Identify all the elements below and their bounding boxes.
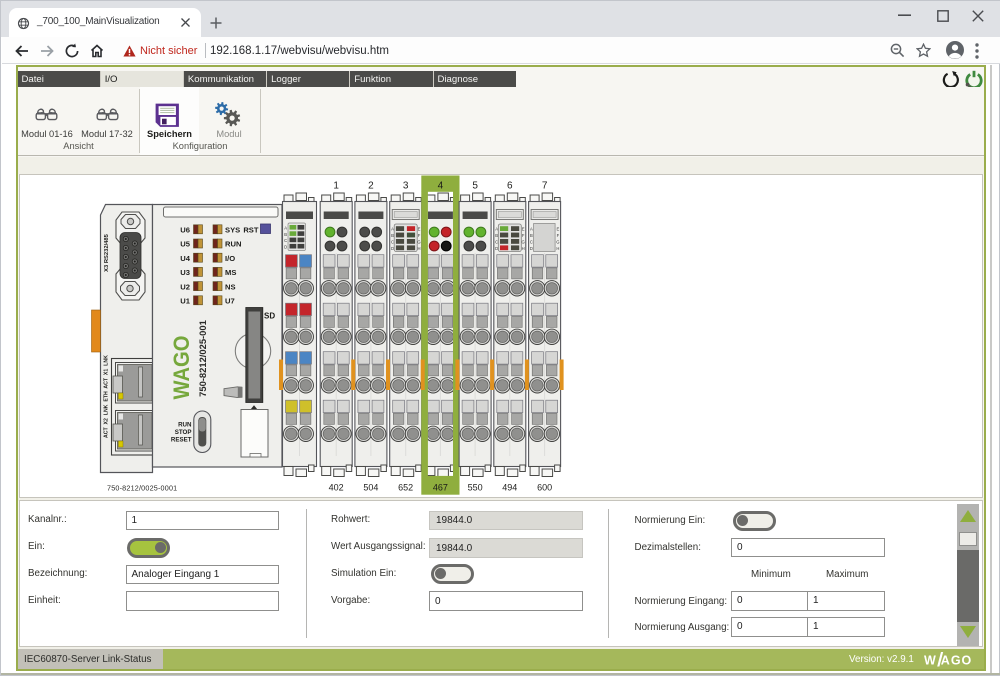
- svg-text:STOP: STOP: [175, 429, 192, 436]
- svg-text:F: F: [557, 233, 560, 238]
- svg-text:U1: U1: [180, 297, 190, 306]
- svg-text:I/O: I/O: [225, 254, 235, 263]
- svg-text:U6: U6: [180, 226, 190, 235]
- svg-text:RST: RST: [243, 225, 259, 234]
- svg-text:A: A: [391, 227, 394, 232]
- svg-text:D: D: [284, 245, 287, 250]
- svg-text:2: 2: [368, 181, 374, 192]
- svg-text:H: H: [556, 246, 559, 251]
- svg-text:SYS: SYS: [225, 226, 240, 235]
- svg-text:D: D: [495, 246, 498, 251]
- svg-text:5: 5: [472, 181, 478, 192]
- svg-text:G: G: [417, 239, 420, 244]
- svg-text:504: 504: [363, 483, 378, 493]
- svg-text:G: G: [521, 239, 524, 244]
- svg-text:A: A: [530, 227, 533, 232]
- svg-text:B: B: [284, 232, 287, 237]
- svg-text:U2: U2: [180, 282, 190, 291]
- svg-text:H: H: [522, 246, 525, 251]
- svg-text:U4: U4: [180, 254, 190, 263]
- svg-text:C: C: [391, 239, 394, 244]
- svg-text:4: 4: [438, 181, 444, 192]
- svg-text:U7: U7: [225, 297, 235, 306]
- svg-text:D: D: [391, 246, 394, 251]
- svg-text:D: D: [530, 246, 533, 251]
- svg-text:B: B: [530, 233, 533, 238]
- svg-text:X3 RS232/485: X3 RS232/485: [104, 233, 110, 271]
- svg-text:ACT X2 LNK ETH ACT X1 LN: ACT X2 LNK ETH ACT X1 LNK: [104, 355, 110, 438]
- svg-text:550: 550: [468, 483, 483, 493]
- svg-text:G: G: [556, 239, 559, 244]
- svg-text:A: A: [495, 227, 498, 232]
- svg-text:750-8212/0025-0001: 750-8212/0025-0001: [107, 484, 177, 493]
- svg-text:C: C: [530, 239, 533, 244]
- svg-text:SD: SD: [264, 312, 275, 321]
- svg-text:B: B: [391, 233, 394, 238]
- svg-text:RUN: RUN: [178, 422, 192, 429]
- svg-text:494: 494: [502, 483, 517, 493]
- svg-text:750-8212/025-001: 750-8212/025-001: [197, 320, 208, 397]
- svg-text:RESET: RESET: [171, 437, 192, 444]
- svg-text:W: W: [924, 654, 936, 668]
- svg-text:F: F: [418, 233, 421, 238]
- svg-text:467: 467: [433, 483, 448, 493]
- svg-text:F: F: [522, 233, 525, 238]
- svg-text:E: E: [557, 227, 560, 232]
- svg-text:RUN: RUN: [225, 240, 241, 249]
- svg-text:6: 6: [507, 181, 513, 192]
- svg-text:H: H: [417, 246, 420, 251]
- svg-text:U5: U5: [180, 240, 190, 249]
- svg-text:NS: NS: [225, 282, 236, 291]
- svg-text:1: 1: [333, 181, 339, 192]
- svg-text:B: B: [495, 233, 498, 238]
- svg-text:AGO: AGO: [941, 654, 972, 668]
- svg-text:402: 402: [329, 483, 344, 493]
- svg-text:3: 3: [403, 181, 409, 192]
- svg-text:E: E: [522, 227, 525, 232]
- svg-text:A: A: [284, 226, 287, 231]
- svg-text:E: E: [418, 227, 421, 232]
- svg-text:7: 7: [542, 181, 548, 192]
- svg-text:652: 652: [398, 483, 413, 493]
- svg-text:C: C: [284, 238, 287, 243]
- svg-text:C: C: [495, 239, 498, 244]
- svg-text:WAGO: WAGO: [169, 336, 194, 400]
- svg-text:U3: U3: [180, 268, 190, 277]
- svg-text:MS: MS: [225, 268, 236, 277]
- svg-text:600: 600: [537, 483, 552, 493]
